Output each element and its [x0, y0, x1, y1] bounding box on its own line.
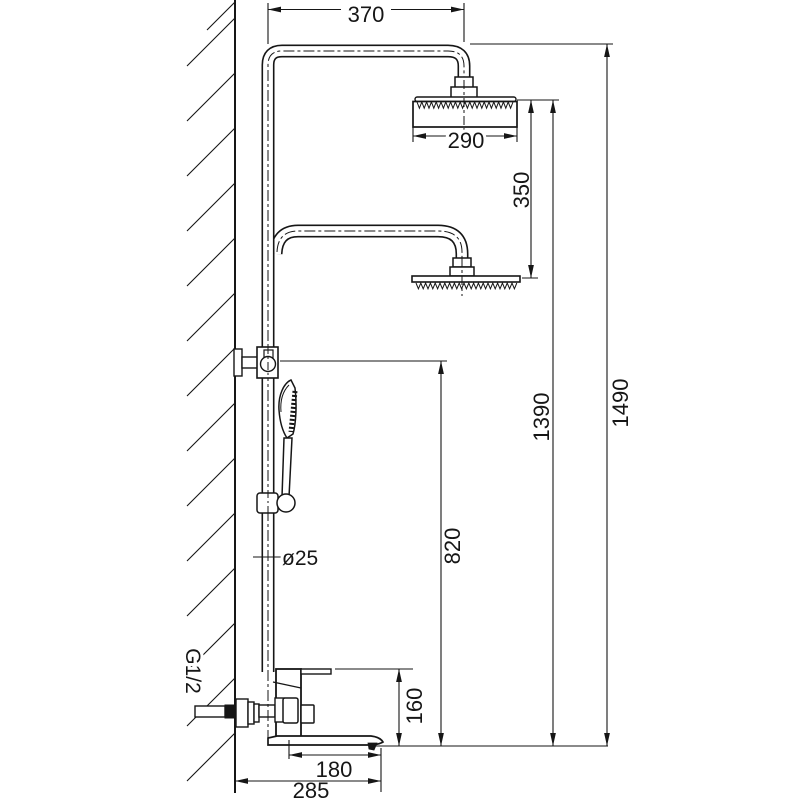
slide-holder-knob	[277, 494, 295, 512]
tub-spout	[268, 736, 383, 745]
hand-shower-handle	[282, 438, 292, 497]
dim-label-370: 370	[348, 2, 385, 27]
lower-shower-arm	[276, 231, 462, 258]
mixer-handle	[283, 698, 298, 723]
dim-label-350: 350	[509, 172, 534, 209]
wall-diverter	[234, 347, 278, 378]
dim-label-160: 160	[402, 688, 427, 725]
head-body	[413, 102, 517, 128]
dim-label-1490: 1490	[608, 379, 633, 428]
inlet-ring	[248, 702, 254, 724]
inlet-nipple	[195, 706, 225, 717]
mixer-side-knob	[301, 705, 314, 723]
dim-label-285: 285	[293, 778, 330, 800]
diverter-wall-flange	[234, 349, 242, 376]
pipe-centerlines	[268, 51, 464, 741]
inlet-flange	[236, 699, 248, 727]
rain-head-upper	[413, 77, 517, 127]
shower-dimension-diagram: 370 290 350 1390 1490 820 160 180 285 ø2…	[0, 0, 800, 800]
head-slab	[412, 276, 520, 282]
dim-label-290: 290	[448, 128, 485, 153]
dim-label-pipe-diameter: ø25	[282, 547, 318, 570]
technical-drawing: 370 290 350 1390 1490 820 160 180 285 ø2…	[0, 0, 800, 800]
dim-label-820: 820	[440, 528, 465, 565]
inlet-ring2	[254, 704, 259, 722]
dim-label-inlet-thread: G1/2	[181, 648, 204, 694]
inlet-pipe	[259, 705, 275, 717]
rain-head-lower	[412, 258, 520, 289]
dim-label-1390: 1390	[529, 393, 554, 442]
diverter-pipe	[242, 357, 258, 368]
inlet-seal	[225, 705, 236, 718]
hand-shower-head	[279, 380, 296, 438]
water-inlet	[195, 698, 284, 727]
head-nozzles	[416, 283, 517, 289]
dimension-labels: 370 290 350 1390 1490 820 160 180 285 ø2…	[181, 2, 633, 800]
mixer-top-lip	[301, 669, 331, 674]
